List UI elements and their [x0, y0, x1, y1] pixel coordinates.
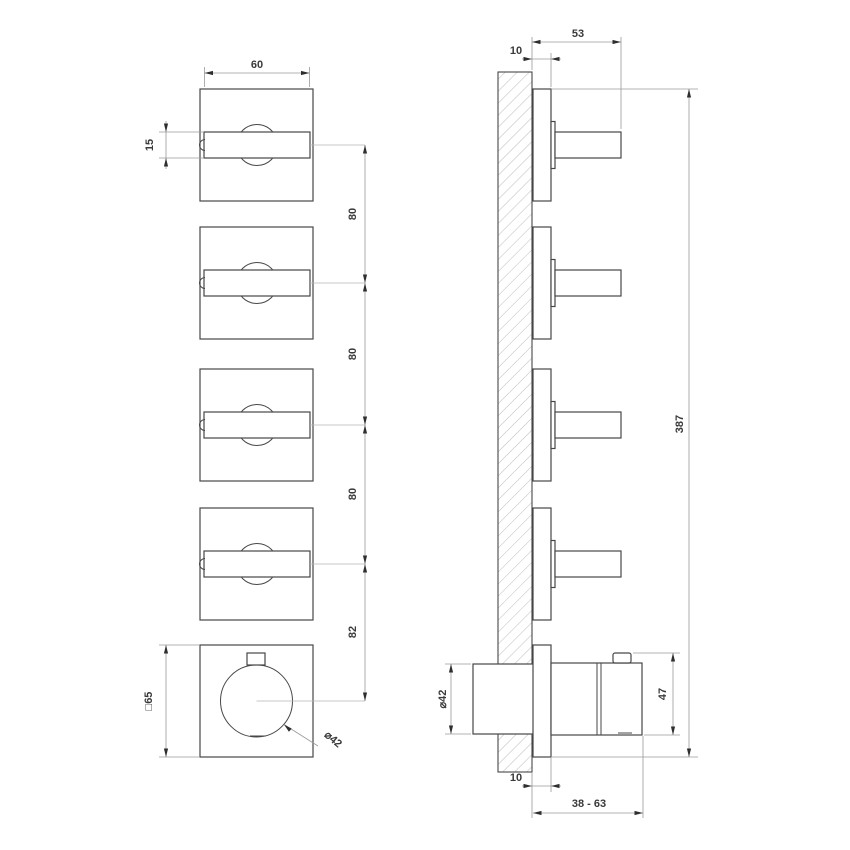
dim-label-10-top: 10	[510, 45, 522, 57]
dim-label-53: 53	[572, 28, 584, 40]
lever-handle-1	[204, 132, 310, 158]
valve-body-cylinder	[473, 664, 534, 734]
dim-label-10-bottom: 10	[510, 772, 522, 784]
side-valve-plate-1	[533, 89, 551, 201]
dim-label-80-2: 80	[347, 348, 359, 360]
side-valve-plate-3	[533, 369, 551, 481]
lever-handle-4	[204, 551, 310, 577]
knob-button-side	[613, 653, 631, 663]
front-valve-plate-2	[200, 227, 314, 339]
technical-drawing-canvas: 60 15 80 80	[0, 0, 850, 850]
dim-label-47: 47	[657, 688, 669, 700]
dim-label-square65: □65	[143, 692, 155, 711]
lever-handle-3	[204, 412, 310, 438]
front-valve-plate-3	[200, 369, 314, 481]
front-valve-plate-1	[200, 89, 314, 201]
side-thermostat-plate	[533, 645, 551, 757]
front-valve-plate-4	[200, 508, 314, 620]
dim-label-387: 387	[674, 415, 686, 433]
lever-handle-2	[204, 270, 310, 296]
dim-label-82: 82	[347, 626, 359, 638]
dim-label-80-3: 80	[347, 488, 359, 500]
dim-label-60: 60	[251, 59, 263, 71]
side-valve-plate-2	[533, 227, 551, 339]
side-thermostat-knob	[551, 653, 642, 735]
knob-button-front	[247, 653, 265, 665]
dim-label-80-1: 80	[347, 208, 359, 220]
side-valve-plate-4	[533, 508, 551, 620]
dim-label-dia42-side: ⌀42	[437, 690, 449, 709]
dim-label-38-63: 38 - 63	[572, 798, 606, 810]
dim-label-15: 15	[144, 139, 156, 151]
paper-background	[0, 0, 850, 850]
technical-drawing-page: 60 15 80 80	[0, 0, 850, 850]
